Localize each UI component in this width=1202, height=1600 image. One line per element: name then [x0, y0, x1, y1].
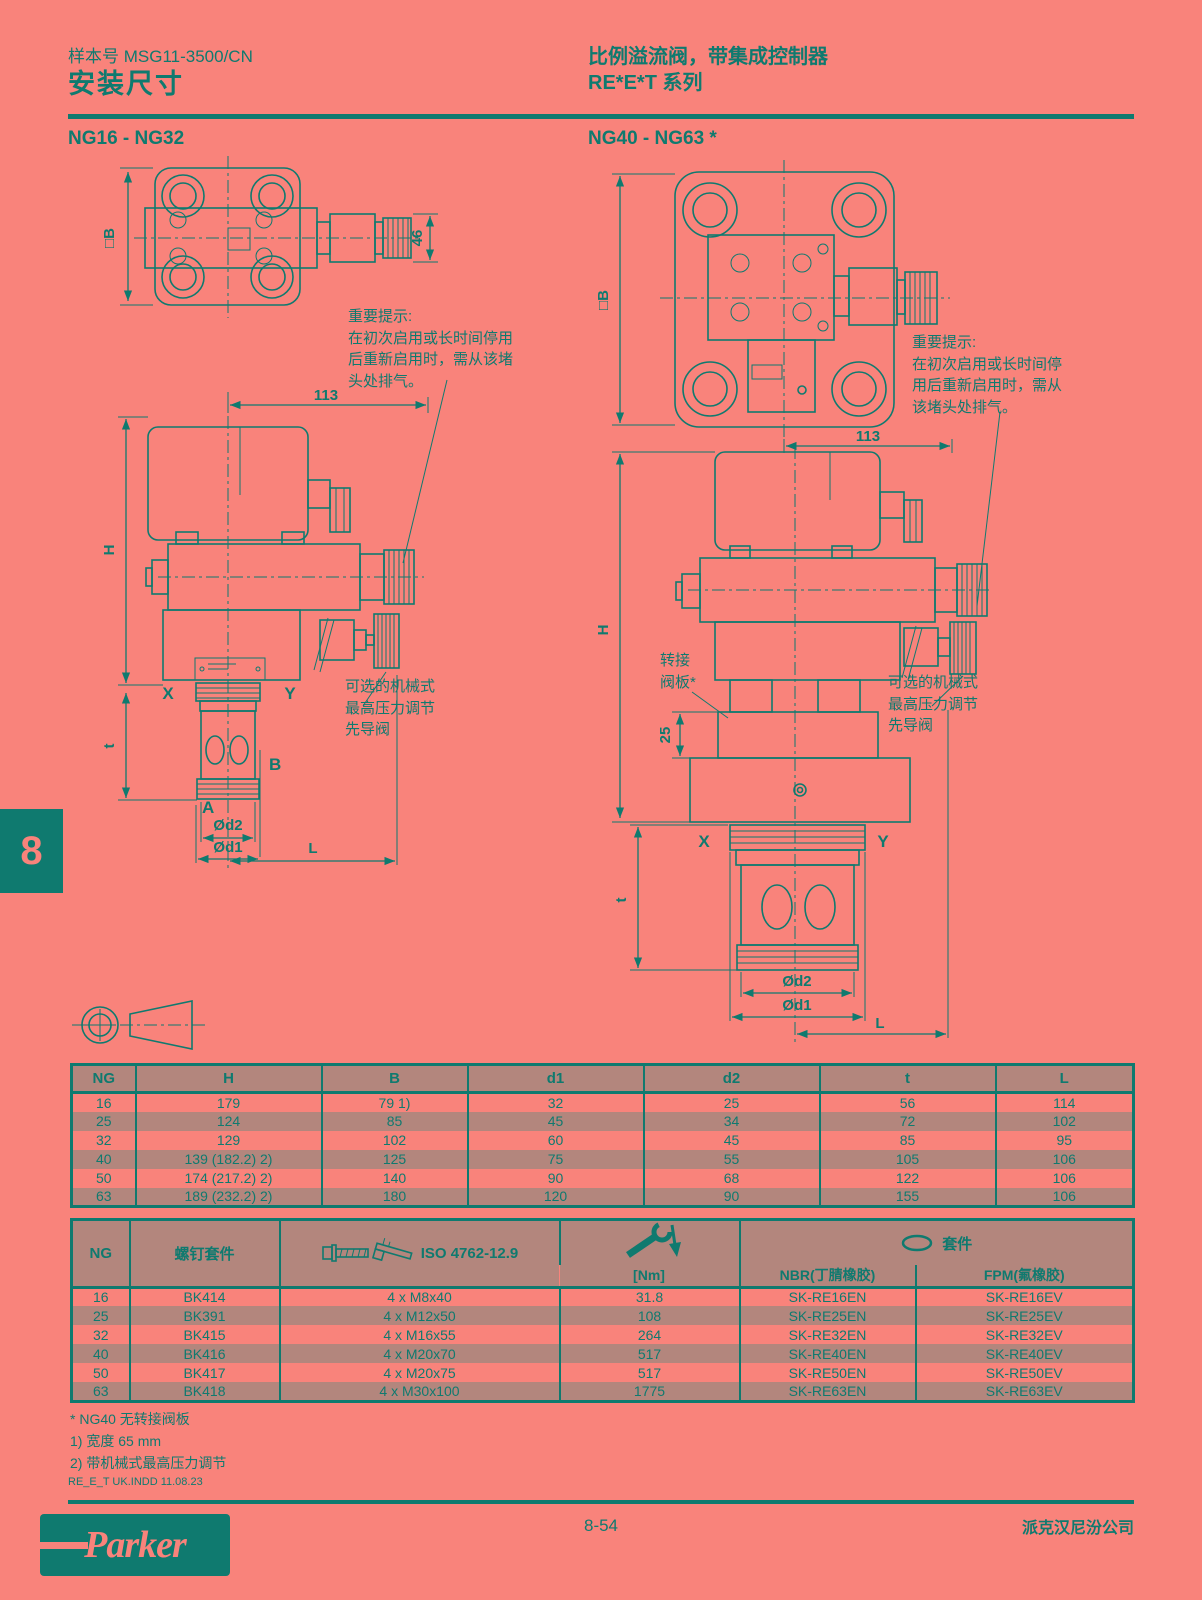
- cell: 106: [996, 1169, 1134, 1188]
- table-row: 40139 (182.2) 2)1257555105106: [72, 1150, 1134, 1169]
- cell: 32: [72, 1131, 136, 1150]
- table-row: 40BK4164 x M20x70517SK-RE40ENSK-RE40EV: [72, 1344, 1134, 1363]
- dim-h: H: [101, 545, 118, 556]
- note-line: 可选的机械式: [345, 676, 435, 698]
- cell: 85: [322, 1112, 468, 1131]
- dim-d2: Ød2: [213, 817, 242, 834]
- cell: 4 x M20x70: [280, 1344, 560, 1363]
- cell: SK-RE32EN: [740, 1325, 916, 1344]
- optional-note-left: 可选的机械式 最高压力调节 先导阀: [345, 676, 435, 741]
- parker-logo: Parker: [40, 1514, 230, 1576]
- wrench-icon: [618, 1221, 682, 1261]
- cell: 63: [72, 1188, 136, 1207]
- cell: SK-RE63EN: [740, 1382, 916, 1401]
- table-row: 50BK4174 x M20x75517SK-RE50ENSK-RE50EV: [72, 1363, 1134, 1382]
- note-line: 用后重新启用时，需从: [912, 375, 1062, 397]
- cell: 4 x M16x55: [280, 1325, 560, 1344]
- company-name: 派克汉尼汾公司: [1022, 1514, 1134, 1538]
- footnotes: * NG40 无转接阀板 1) 宽度 65 mm 2) 带机械式最高压力调节: [70, 1408, 226, 1474]
- footer-rule: [68, 1500, 1134, 1504]
- cell: SK-RE16EV: [916, 1287, 1134, 1306]
- cell: 16: [72, 1287, 130, 1306]
- dim-t: t: [613, 898, 630, 903]
- cell: SK-RE50EN: [740, 1363, 916, 1382]
- valve-side-view: H 25 X Y: [595, 446, 992, 1043]
- table-row: 1617979 1)322556114: [72, 1093, 1134, 1112]
- iso-label: ISO 4762-12.9: [421, 1245, 519, 1262]
- port-x: X: [162, 684, 174, 703]
- adapter-plate-label: 转接 阀板*: [660, 650, 696, 693]
- dim-l: L: [308, 840, 317, 857]
- note-line: 重要提示:: [912, 332, 1062, 354]
- dim-113: 113: [314, 387, 338, 404]
- col-header-l: L: [996, 1065, 1134, 1093]
- note-line: 在初次启用或长时间停: [912, 354, 1062, 376]
- cell: 45: [468, 1112, 644, 1131]
- header-row: NG 螺钉套件: [72, 1220, 1134, 1266]
- dimension-table: NG H B d1 d2 t L 1617979 1)322556114 251…: [70, 1063, 1135, 1208]
- note-line: 阀板*: [660, 672, 696, 694]
- cell: SK-RE32EV: [916, 1325, 1134, 1344]
- table-row: 25BK3914 x M12x50108SK-RE25ENSK-RE25EV: [72, 1306, 1134, 1325]
- cell: BK391: [130, 1306, 280, 1325]
- cell: BK415: [130, 1325, 280, 1344]
- footnote: 2) 带机械式最高压力调节: [70, 1452, 226, 1474]
- footnote: 1) 宽度 65 mm: [70, 1430, 226, 1452]
- cell: 174 (217.2) 2): [136, 1169, 322, 1188]
- cell: BK416: [130, 1344, 280, 1363]
- table-row: 63189 (232.2) 2)18012090155106: [72, 1188, 1134, 1207]
- col-header-fpm: FPM(氟橡胶): [916, 1265, 1134, 1287]
- header-rule: [68, 114, 1134, 119]
- cell: 60: [468, 1131, 644, 1150]
- kit-table: NG 螺钉套件: [70, 1218, 1135, 1403]
- cell: 40: [72, 1344, 130, 1363]
- parker-logo-text: Parker: [84, 1523, 186, 1567]
- cell: 102: [322, 1131, 468, 1150]
- cell: 56: [820, 1093, 996, 1112]
- dim-square-b: □B: [101, 228, 118, 248]
- cell: 120: [468, 1188, 644, 1207]
- cell: 85: [820, 1131, 996, 1150]
- cell: SK-RE40EV: [916, 1344, 1134, 1363]
- cell: 34: [644, 1112, 820, 1131]
- dim-l: L: [875, 1015, 884, 1032]
- cell: 517: [560, 1363, 740, 1382]
- cell: SK-RE16EN: [740, 1287, 916, 1306]
- section-label-left: NG16 - NG32: [68, 128, 184, 150]
- note-line: 转接: [660, 650, 696, 672]
- cell: 129: [136, 1131, 322, 1150]
- cell: 72: [820, 1112, 996, 1131]
- col-header-d2: d2: [644, 1065, 820, 1093]
- cell: 4 x M30x100: [280, 1382, 560, 1401]
- cell: 155: [820, 1188, 996, 1207]
- o-ring-icon: [900, 1234, 934, 1252]
- dim-d2: Ød2: [782, 973, 811, 990]
- cell: BK414: [130, 1287, 280, 1306]
- cell: 179: [136, 1093, 322, 1112]
- dim-25: 25: [657, 727, 674, 744]
- table-row: 50174 (217.2) 2)1409068122106: [72, 1169, 1134, 1188]
- cell: 140: [322, 1169, 468, 1188]
- note-line: 最高压力调节: [345, 698, 435, 720]
- cell: 4 x M20x75: [280, 1363, 560, 1382]
- file-reference: RE_E_T UK.INDD 11.08.23: [68, 1476, 203, 1488]
- cell: 32: [72, 1325, 130, 1344]
- cell: 108: [560, 1306, 740, 1325]
- port-y: Y: [877, 832, 889, 851]
- table-row: 3212910260458595: [72, 1131, 1134, 1150]
- dim-d1: Ød1: [213, 839, 242, 856]
- port-a: A: [202, 798, 214, 817]
- note-line: 先导阀: [345, 719, 435, 741]
- cell: 95: [996, 1131, 1134, 1150]
- dim-46: 46: [409, 230, 426, 247]
- cell: 106: [996, 1188, 1134, 1207]
- first-angle-projection-icon: [70, 992, 210, 1058]
- cell: 189 (232.2) 2): [136, 1188, 322, 1207]
- drawing-ng40-ng63: □B 113 H: [580, 150, 1150, 1050]
- cell: 139 (182.2) 2): [136, 1150, 322, 1169]
- cell: BK417: [130, 1363, 280, 1382]
- cell: 105: [820, 1150, 996, 1169]
- cell: 264: [560, 1325, 740, 1344]
- cell: 4 x M8x40: [280, 1287, 560, 1306]
- arrow-down-icon: [669, 1225, 681, 1257]
- cell: 124: [136, 1112, 322, 1131]
- table-row: 32BK4154 x M16x55264SK-RE32ENSK-RE32EV: [72, 1325, 1134, 1344]
- series-title: RE*E*T 系列: [588, 66, 702, 95]
- cell: 25: [72, 1306, 130, 1325]
- cell: 106: [996, 1150, 1134, 1169]
- seal-kit-header: 套件: [740, 1220, 1134, 1266]
- cell: 50: [72, 1363, 130, 1382]
- col-header-t: t: [820, 1065, 996, 1093]
- cell: 55: [644, 1150, 820, 1169]
- dim-h: H: [595, 625, 612, 636]
- port-b: B: [269, 755, 281, 774]
- note-line: 可选的机械式: [888, 672, 978, 694]
- col-header-nbr: NBR(丁腈橡胶): [740, 1265, 916, 1287]
- cell: 79 1): [322, 1093, 468, 1112]
- drawing-ng16-ng32: □B 46 113 H t: [68, 150, 538, 890]
- port-x: X: [698, 832, 710, 851]
- seal-kit-label: 套件: [942, 1233, 972, 1254]
- cell: 16: [72, 1093, 136, 1112]
- note-line: 该堵头处排气。: [912, 397, 1062, 419]
- col-header-ng: NG: [72, 1065, 136, 1093]
- table-row: 2512485453472102: [72, 1112, 1134, 1131]
- section-label-right: NG40 - NG63 *: [588, 128, 717, 150]
- cell: 45: [644, 1131, 820, 1150]
- cell: 40: [72, 1150, 136, 1169]
- port-y: Y: [284, 684, 296, 703]
- cell: SK-RE25EN: [740, 1306, 916, 1325]
- header-row: NG H B d1 d2 t L: [72, 1065, 1134, 1093]
- table-row: 16BK4144 x M8x4031.8SK-RE16ENSK-RE16EV: [72, 1287, 1134, 1306]
- cell: 50: [72, 1169, 136, 1188]
- col-header-b: B: [322, 1065, 468, 1093]
- footnote: * NG40 无转接阀板: [70, 1408, 226, 1430]
- cell: BK418: [130, 1382, 280, 1401]
- cell: 517: [560, 1344, 740, 1363]
- col-header-d1: d1: [468, 1065, 644, 1093]
- chapter-tab: 8: [0, 809, 63, 893]
- dim-t: t: [101, 744, 118, 749]
- col-header-h: H: [136, 1065, 322, 1093]
- torque-icon-cell: [560, 1220, 740, 1266]
- cell: 125: [322, 1150, 468, 1169]
- valve-side-view: 113 H t X Y: [101, 387, 428, 868]
- col-header-iso: ISO 4762-12.9: [280, 1220, 560, 1288]
- cell: 63: [72, 1382, 130, 1401]
- cell: 114: [996, 1093, 1134, 1112]
- table-row: 63BK4184 x M30x1001775SK-RE63ENSK-RE63EV: [72, 1382, 1134, 1401]
- cell: 1775: [560, 1382, 740, 1401]
- cell: 32: [468, 1093, 644, 1112]
- note-line: 重要提示:: [348, 306, 513, 328]
- cell: 90: [468, 1169, 644, 1188]
- parker-logo-bar: [40, 1542, 88, 1549]
- cell: 31.8: [560, 1287, 740, 1306]
- cell: SK-RE40EN: [740, 1344, 916, 1363]
- note-line: 最高压力调节: [888, 694, 978, 716]
- chapter-tab-label: 8: [20, 829, 42, 874]
- col-header-torque: [Nm]: [560, 1265, 740, 1287]
- cell: 4 x M12x50: [280, 1306, 560, 1325]
- note-line: 在初次启用或长时间停用: [348, 328, 513, 350]
- cell: 122: [820, 1169, 996, 1188]
- page-number: 8-54: [540, 1516, 662, 1536]
- cell: SK-RE63EV: [916, 1382, 1134, 1401]
- dim-d1: Ød1: [782, 997, 811, 1014]
- page-title: 安装尺寸: [68, 62, 184, 101]
- bolt-icon: [321, 1239, 413, 1267]
- cell: 90: [644, 1188, 820, 1207]
- cell: 68: [644, 1169, 820, 1188]
- product-title: 比例溢流阀，带集成控制器: [588, 40, 828, 69]
- dim-square-b: □B: [595, 290, 612, 310]
- caliper-icon: [373, 1237, 414, 1268]
- col-header-screw-kit: 螺钉套件: [130, 1220, 280, 1288]
- note-line: 后重新启用时，需从该堵: [348, 349, 513, 371]
- cell: 25: [72, 1112, 136, 1131]
- important-note-right: 重要提示: 在初次启用或长时间停 用后重新启用时，需从 该堵头处排气。: [912, 332, 1062, 418]
- cell: 25: [644, 1093, 820, 1112]
- cell: 75: [468, 1150, 644, 1169]
- note-line: 先导阀: [888, 715, 978, 737]
- note-line: 头处排气。: [348, 371, 513, 393]
- col-header-ng: NG: [72, 1220, 130, 1288]
- dim-113: 113: [856, 428, 880, 445]
- cell: 180: [322, 1188, 468, 1207]
- cell: SK-RE50EV: [916, 1363, 1134, 1382]
- optional-note-right: 可选的机械式 最高压力调节 先导阀: [888, 672, 978, 737]
- cell: 102: [996, 1112, 1134, 1131]
- cell: SK-RE25EV: [916, 1306, 1134, 1325]
- important-note-left: 重要提示: 在初次启用或长时间停用 后重新启用时，需从该堵 头处排气。: [348, 306, 513, 392]
